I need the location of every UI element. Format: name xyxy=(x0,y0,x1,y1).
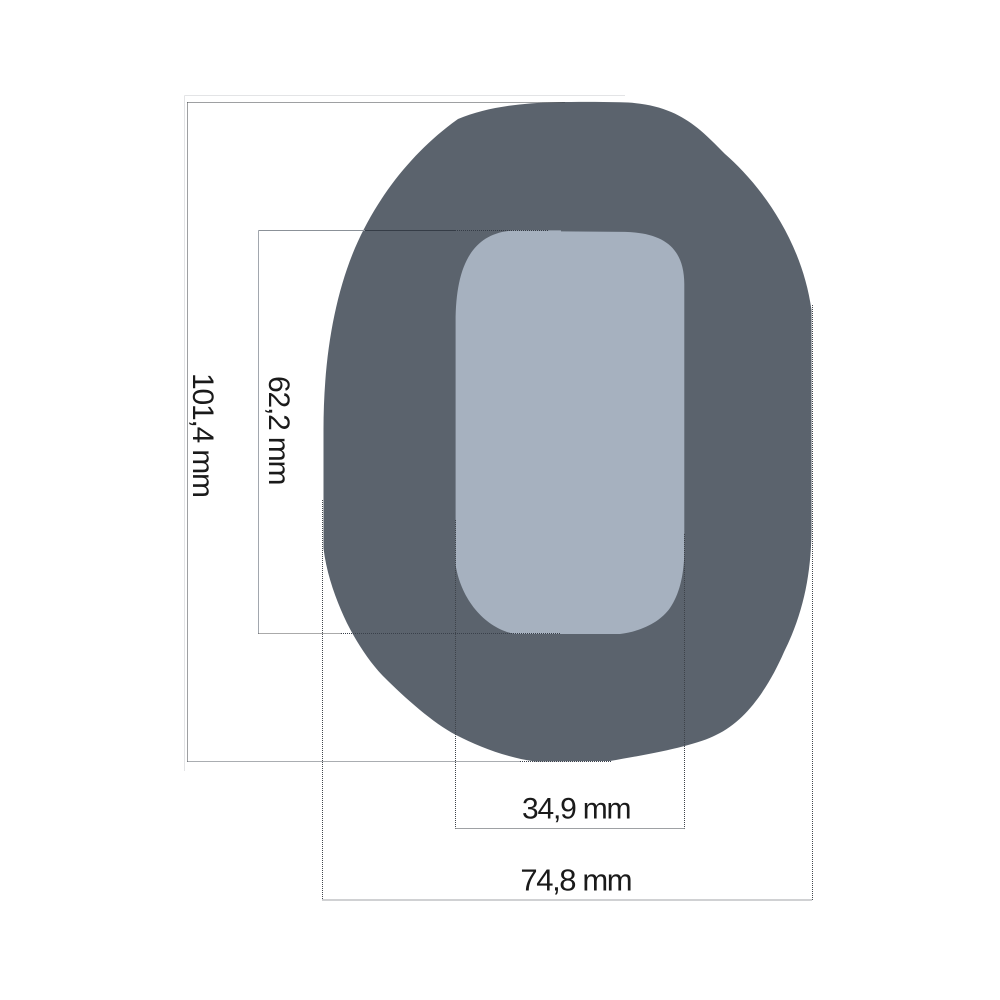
svg-text:74,8 mm: 74,8 mm xyxy=(520,863,631,898)
svg-text:62,2 mm: 62,2 mm xyxy=(262,376,295,485)
svg-text:101,4 mm: 101,4 mm xyxy=(186,373,219,497)
svg-text:34,9 mm: 34,9 mm xyxy=(522,793,631,826)
